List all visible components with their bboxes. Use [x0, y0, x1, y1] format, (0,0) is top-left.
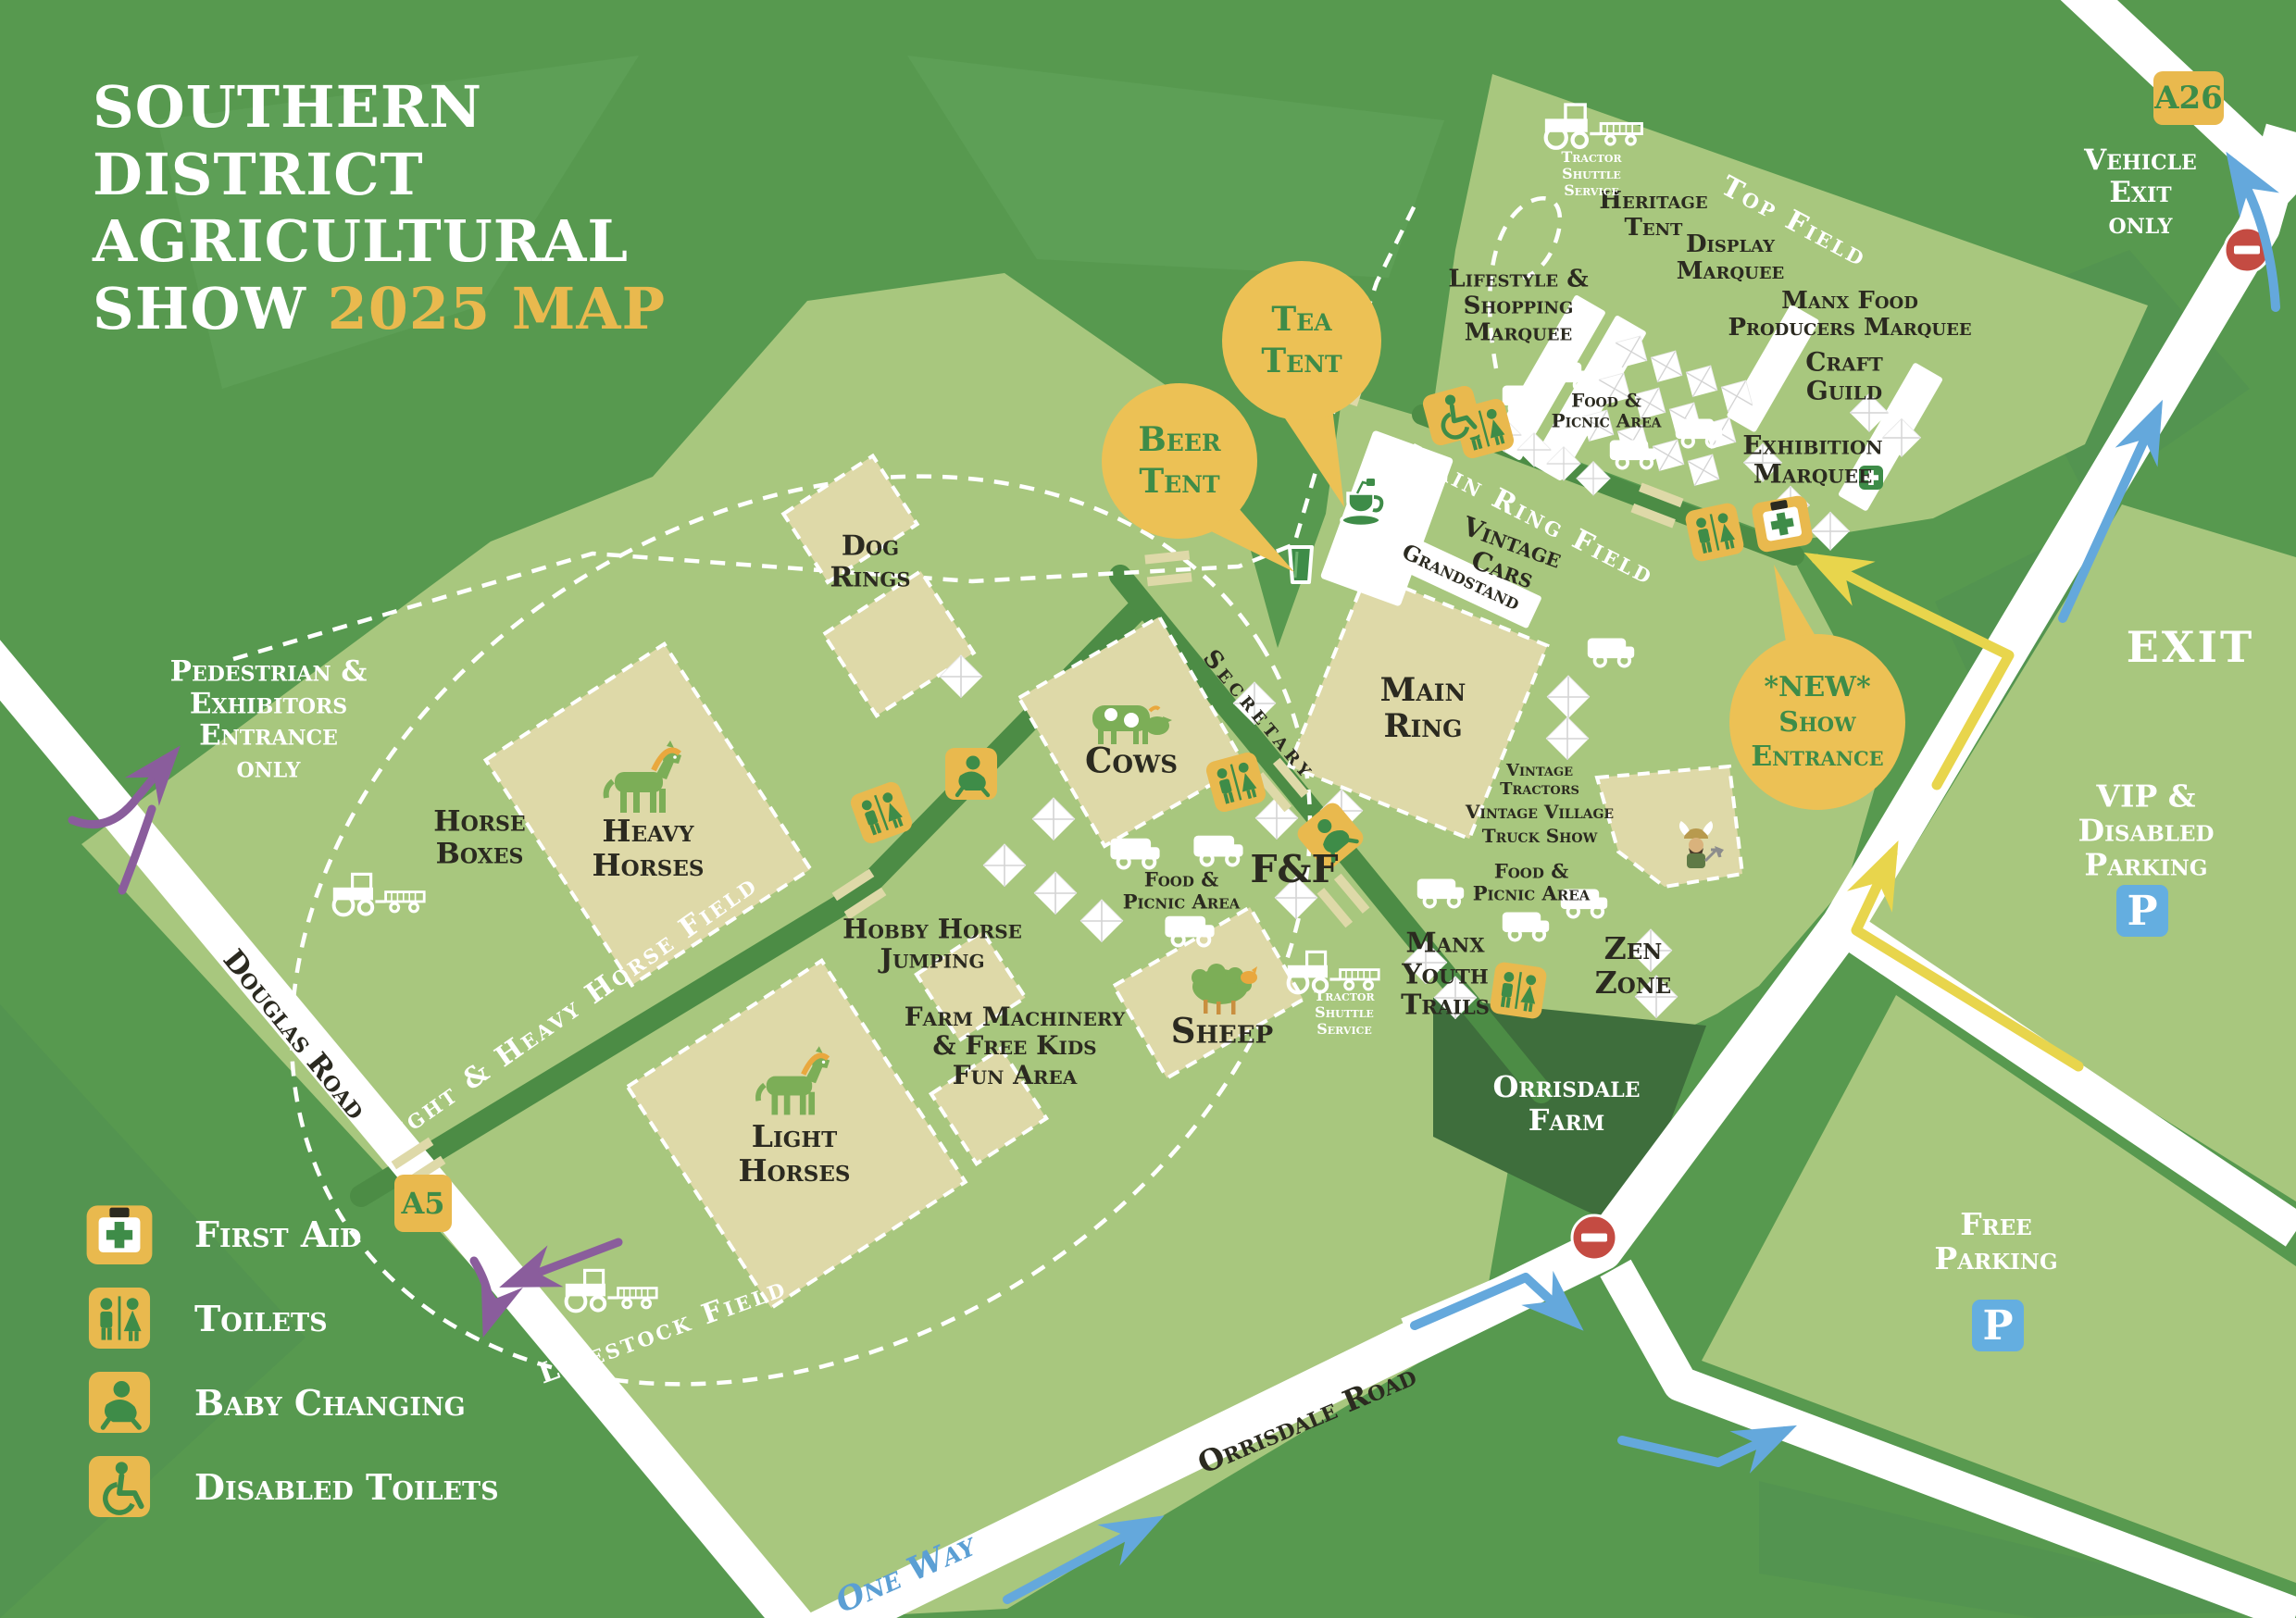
vehicle-exit-only-label: Vehicle Exit only: [2084, 144, 2197, 241]
beer-glass-icon: [1290, 547, 1312, 582]
no-entry-icon: [1572, 1215, 1616, 1260]
show-map: SOUTHERN DISTRICT AGRICULTURAL SHOW 2025…: [0, 0, 2296, 1618]
vintage-tractors-label: Vintage Tractors: [1500, 762, 1579, 799]
tractor-shuttle-label: Tractor Shuttle Service: [1314, 988, 1374, 1038]
title-line-3: AGRICULTURAL: [93, 208, 666, 276]
horse-boxes-label: Horse Boxes: [433, 805, 525, 869]
vip-parking-p-icon: P: [2116, 885, 2168, 937]
craft-guild-label: Craft Guild: [1805, 348, 1883, 406]
heavy-horses-label: Heavy Horses: [592, 815, 704, 883]
free-parking-label: Free Parking: [1934, 1208, 2057, 1276]
free-parking-p-icon: P: [1972, 1300, 2024, 1351]
f-and-f-label: F&F: [1250, 849, 1338, 891]
food-picnic-label: Food & Picnic Area: [1552, 391, 1662, 432]
free-parking-arrow: [1622, 1431, 1785, 1462]
exhibition-marquee-label: Exhibition Marquee: [1742, 431, 1882, 490]
baby-changing-icon: [85, 1368, 154, 1437]
exit-label: EXIT: [2127, 624, 2255, 672]
zen-zone-label: Zen Zone: [1595, 932, 1672, 1001]
a26-road-badge: A26: [2153, 71, 2224, 125]
legend-item-disabled-toilets: Disabled Toilets: [85, 1452, 499, 1521]
title-line-4: SHOW 2025 MAP: [93, 276, 666, 343]
manx-food-producers-label: Manx Food Producers Marquee: [1728, 288, 1971, 342]
dog-rings-label: Dog Rings: [830, 530, 910, 592]
sheep-label: Sheep: [1171, 1012, 1273, 1050]
legend-label: Toilets: [194, 1298, 328, 1339]
tea-tent-label: Tea Tent: [1261, 299, 1341, 382]
legend-item-baby-changing: Baby Changing: [85, 1368, 499, 1437]
title-line-2: DISTRICT: [93, 142, 666, 209]
truck-show-label: Truck Show: [1482, 826, 1598, 846]
main-ring-label: Main Ring: [1380, 672, 1466, 744]
vip-disabled-parking-label: VIP & Disabled Parking: [2071, 780, 2221, 883]
hobby-horse-jumping-label: Hobby Horse Jumping: [842, 915, 1022, 975]
new-show-entrance-label: *NEW* Show Entrance: [1751, 670, 1883, 775]
cows-label: Cows: [1085, 741, 1178, 779]
title-year: 2025 MAP: [328, 275, 667, 342]
toilets-icon: [85, 1284, 154, 1352]
food-picnic-label: Food & Picnic Area: [1123, 868, 1241, 912]
light-horses-label: Light Horses: [738, 1120, 850, 1189]
baby-changing-icon: [945, 748, 997, 800]
legend-item-first-aid: First Aid: [85, 1200, 499, 1268]
toilets-icon: [1684, 502, 1745, 563]
vintage-village-label: Vintage Village: [1466, 802, 1614, 822]
toilets-icon: [1489, 961, 1547, 1019]
lifestyle-shopping-label: Lifestyle & Shopping Marquee: [1448, 266, 1588, 346]
legend-label: Baby Changing: [194, 1382, 466, 1424]
legend-label: First Aid: [194, 1213, 361, 1255]
first-aid-icon: [1751, 494, 1814, 554]
first-aid-icon: [85, 1200, 154, 1268]
pedestrian-entrance-label: Pedestrian & Exhibitors Entrance only: [170, 656, 368, 785]
disabled-toilets-icon: [85, 1452, 154, 1521]
beer-tent-label: Beer Tent: [1138, 419, 1220, 503]
title-show: SHOW: [93, 275, 306, 342]
tractor-shuttle-label: Tractor Shuttle Service: [1561, 149, 1621, 199]
legend-item-toilets: Toilets: [85, 1284, 499, 1352]
title-line-1: SOUTHERN: [93, 74, 666, 142]
legend-label: Disabled Toilets: [194, 1466, 499, 1508]
display-marquee-label: Display Marquee: [1677, 231, 1785, 285]
manx-youth-trails-label: Manx Youth Trails: [1401, 928, 1490, 1022]
page-title: SOUTHERN DISTRICT AGRICULTURAL SHOW 2025…: [93, 74, 666, 342]
map-legend: First Aid Toilets Baby Changing Disabled…: [85, 1200, 499, 1537]
farm-machinery-label: Farm Machinery & Free Kids Fun Area: [905, 1002, 1125, 1089]
food-picnic-label: Food & Picnic Area: [1473, 860, 1591, 903]
orrisdale-farm-label: Orrisdale Farm: [1492, 1071, 1640, 1138]
